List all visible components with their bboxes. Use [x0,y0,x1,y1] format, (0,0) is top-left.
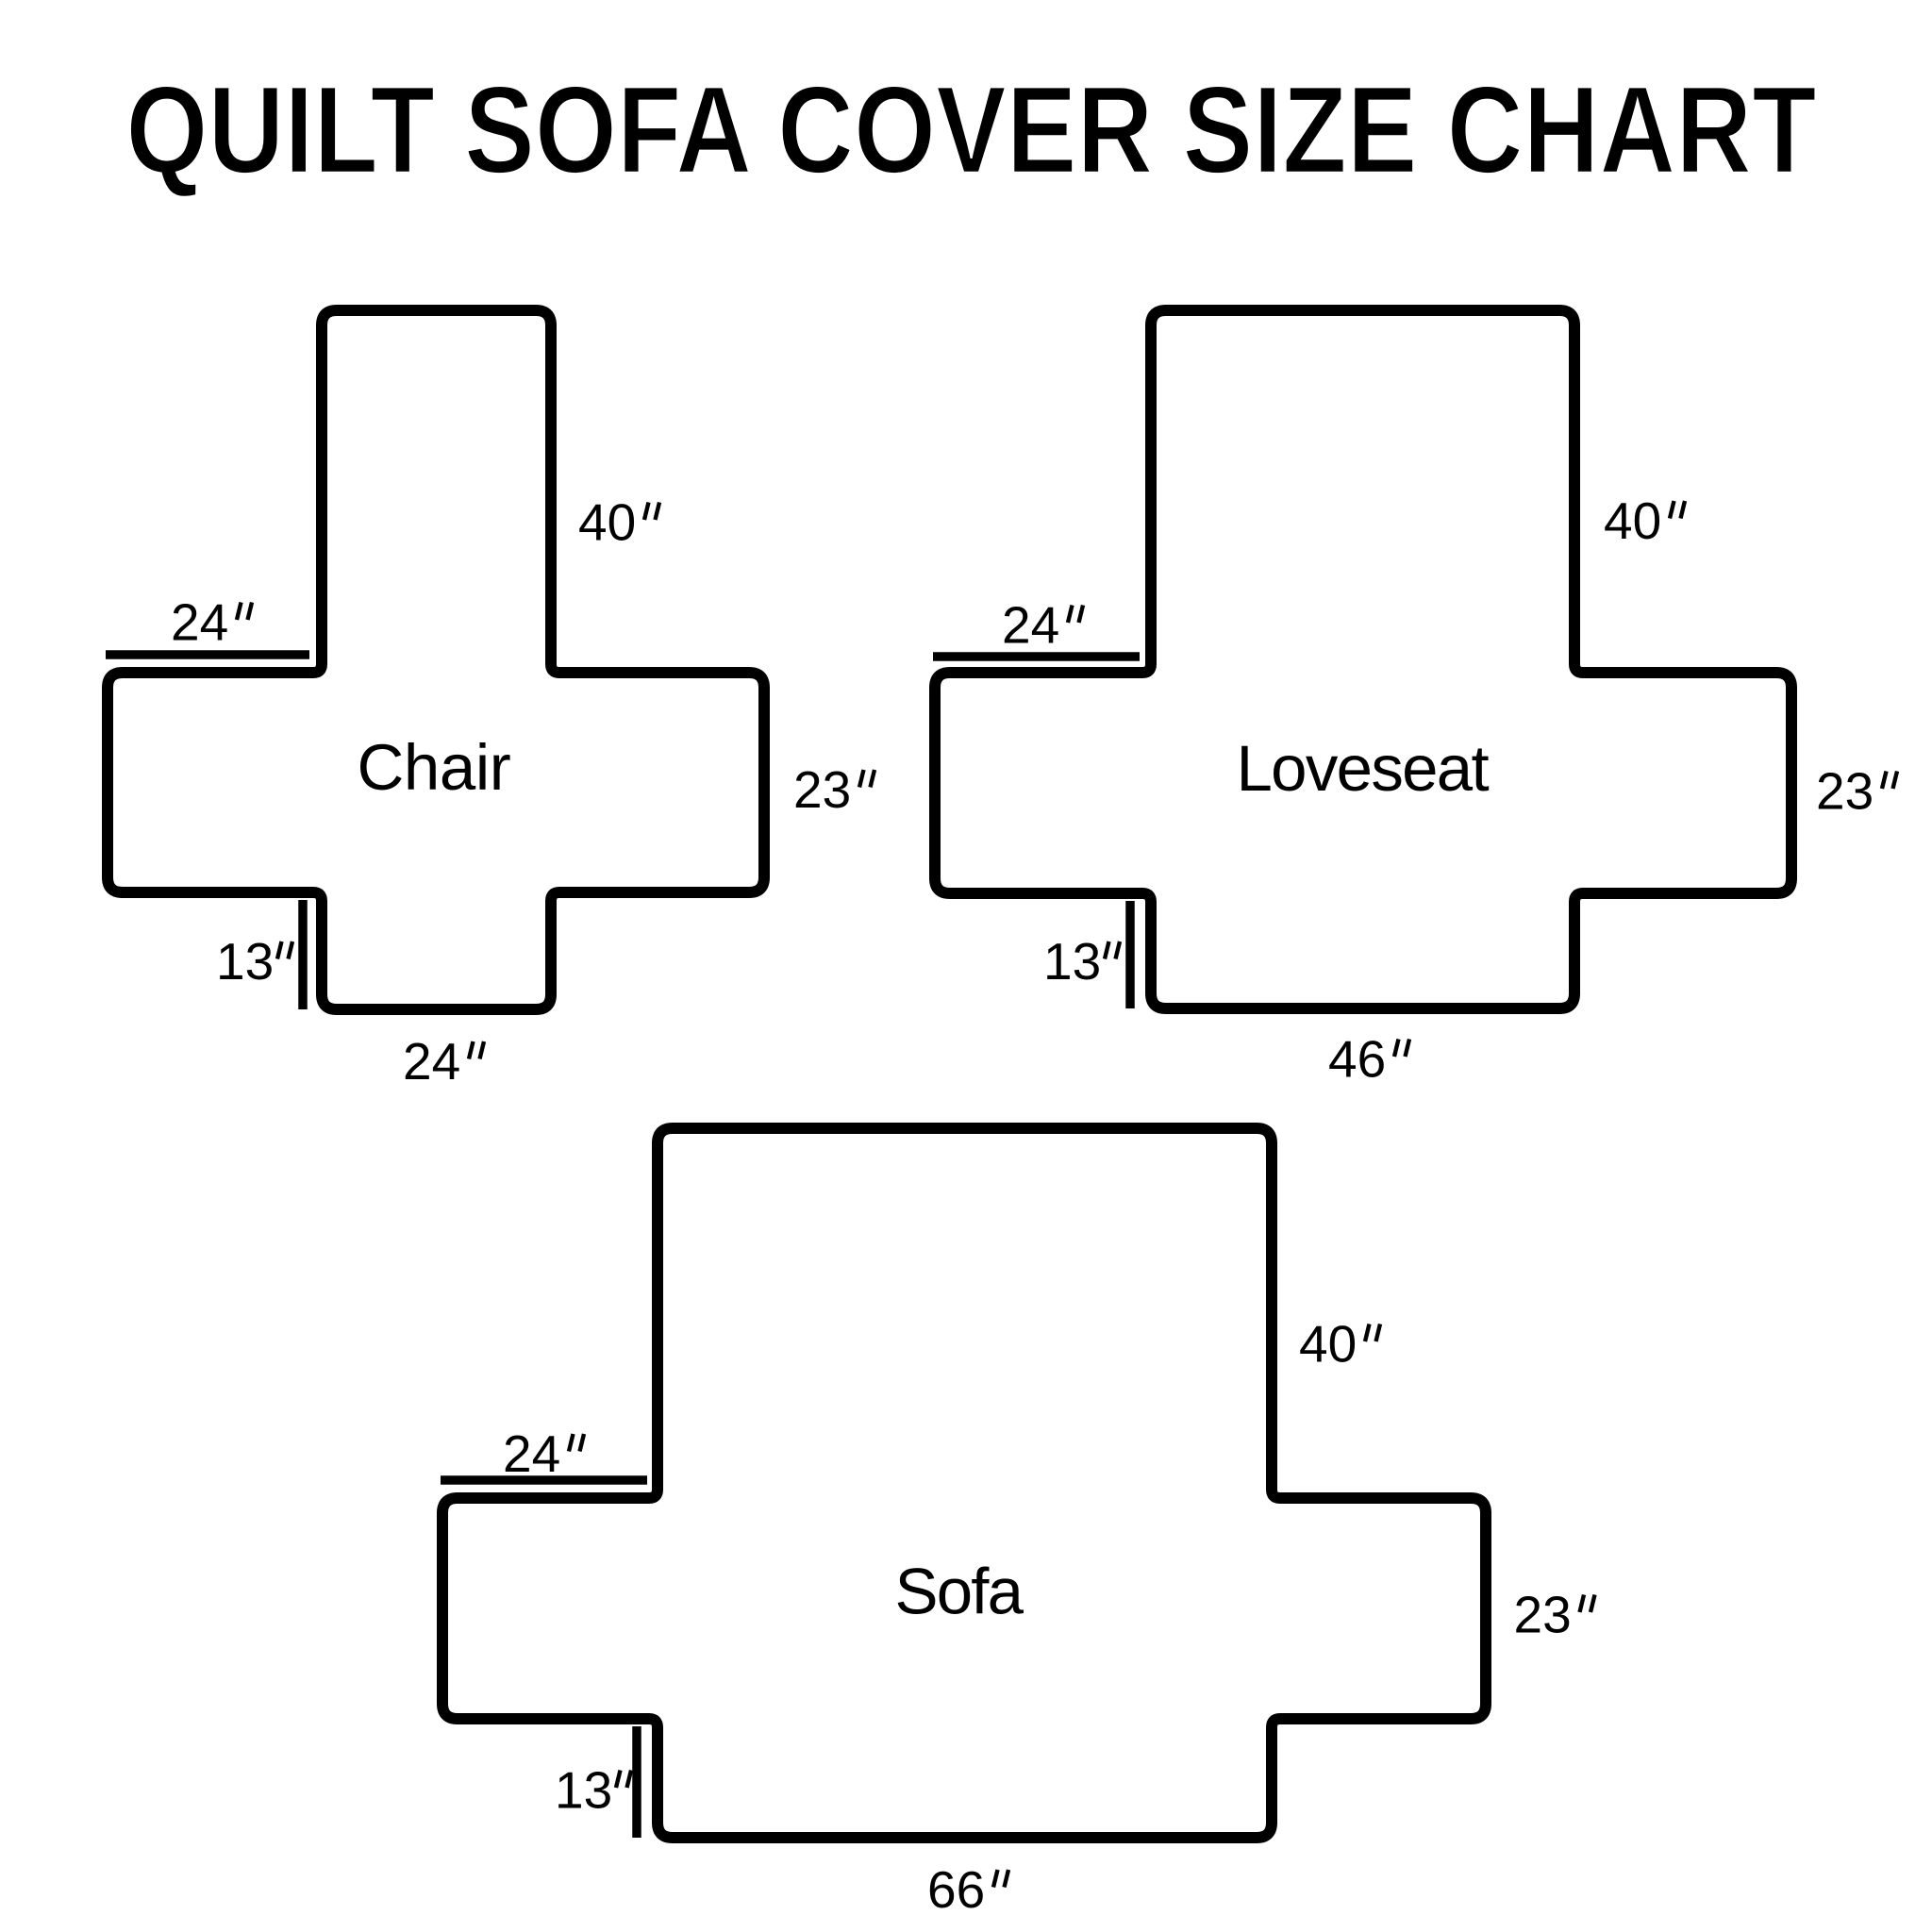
svg-text:13: 13 [1043,932,1101,991]
svg-text:23: 23 [793,760,851,819]
svg-text:24: 24 [503,1424,560,1483]
svg-text:40: 40 [578,493,636,552]
svg-text:23: 23 [1514,1586,1572,1644]
svg-text:40: 40 [1299,1315,1357,1374]
svg-text:40: 40 [1604,491,1661,550]
svg-text:Loveseat: Loveseat [1237,732,1490,805]
svg-text:24: 24 [1002,596,1059,655]
svg-text:66: 66 [927,1860,985,1919]
svg-text:24: 24 [171,593,228,652]
svg-text:24: 24 [403,1032,460,1091]
svg-text:13: 13 [216,932,274,991]
svg-text:QUILT SOFA COVER SIZE CHART: QUILT SOFA COVER SIZE CHART [125,59,1816,199]
svg-text:Chair: Chair [358,731,511,804]
svg-text:13: 13 [555,1761,612,1820]
svg-text:46: 46 [1328,1030,1386,1089]
svg-text:23: 23 [1816,762,1874,821]
svg-text:Sofa: Sofa [895,1556,1024,1628]
